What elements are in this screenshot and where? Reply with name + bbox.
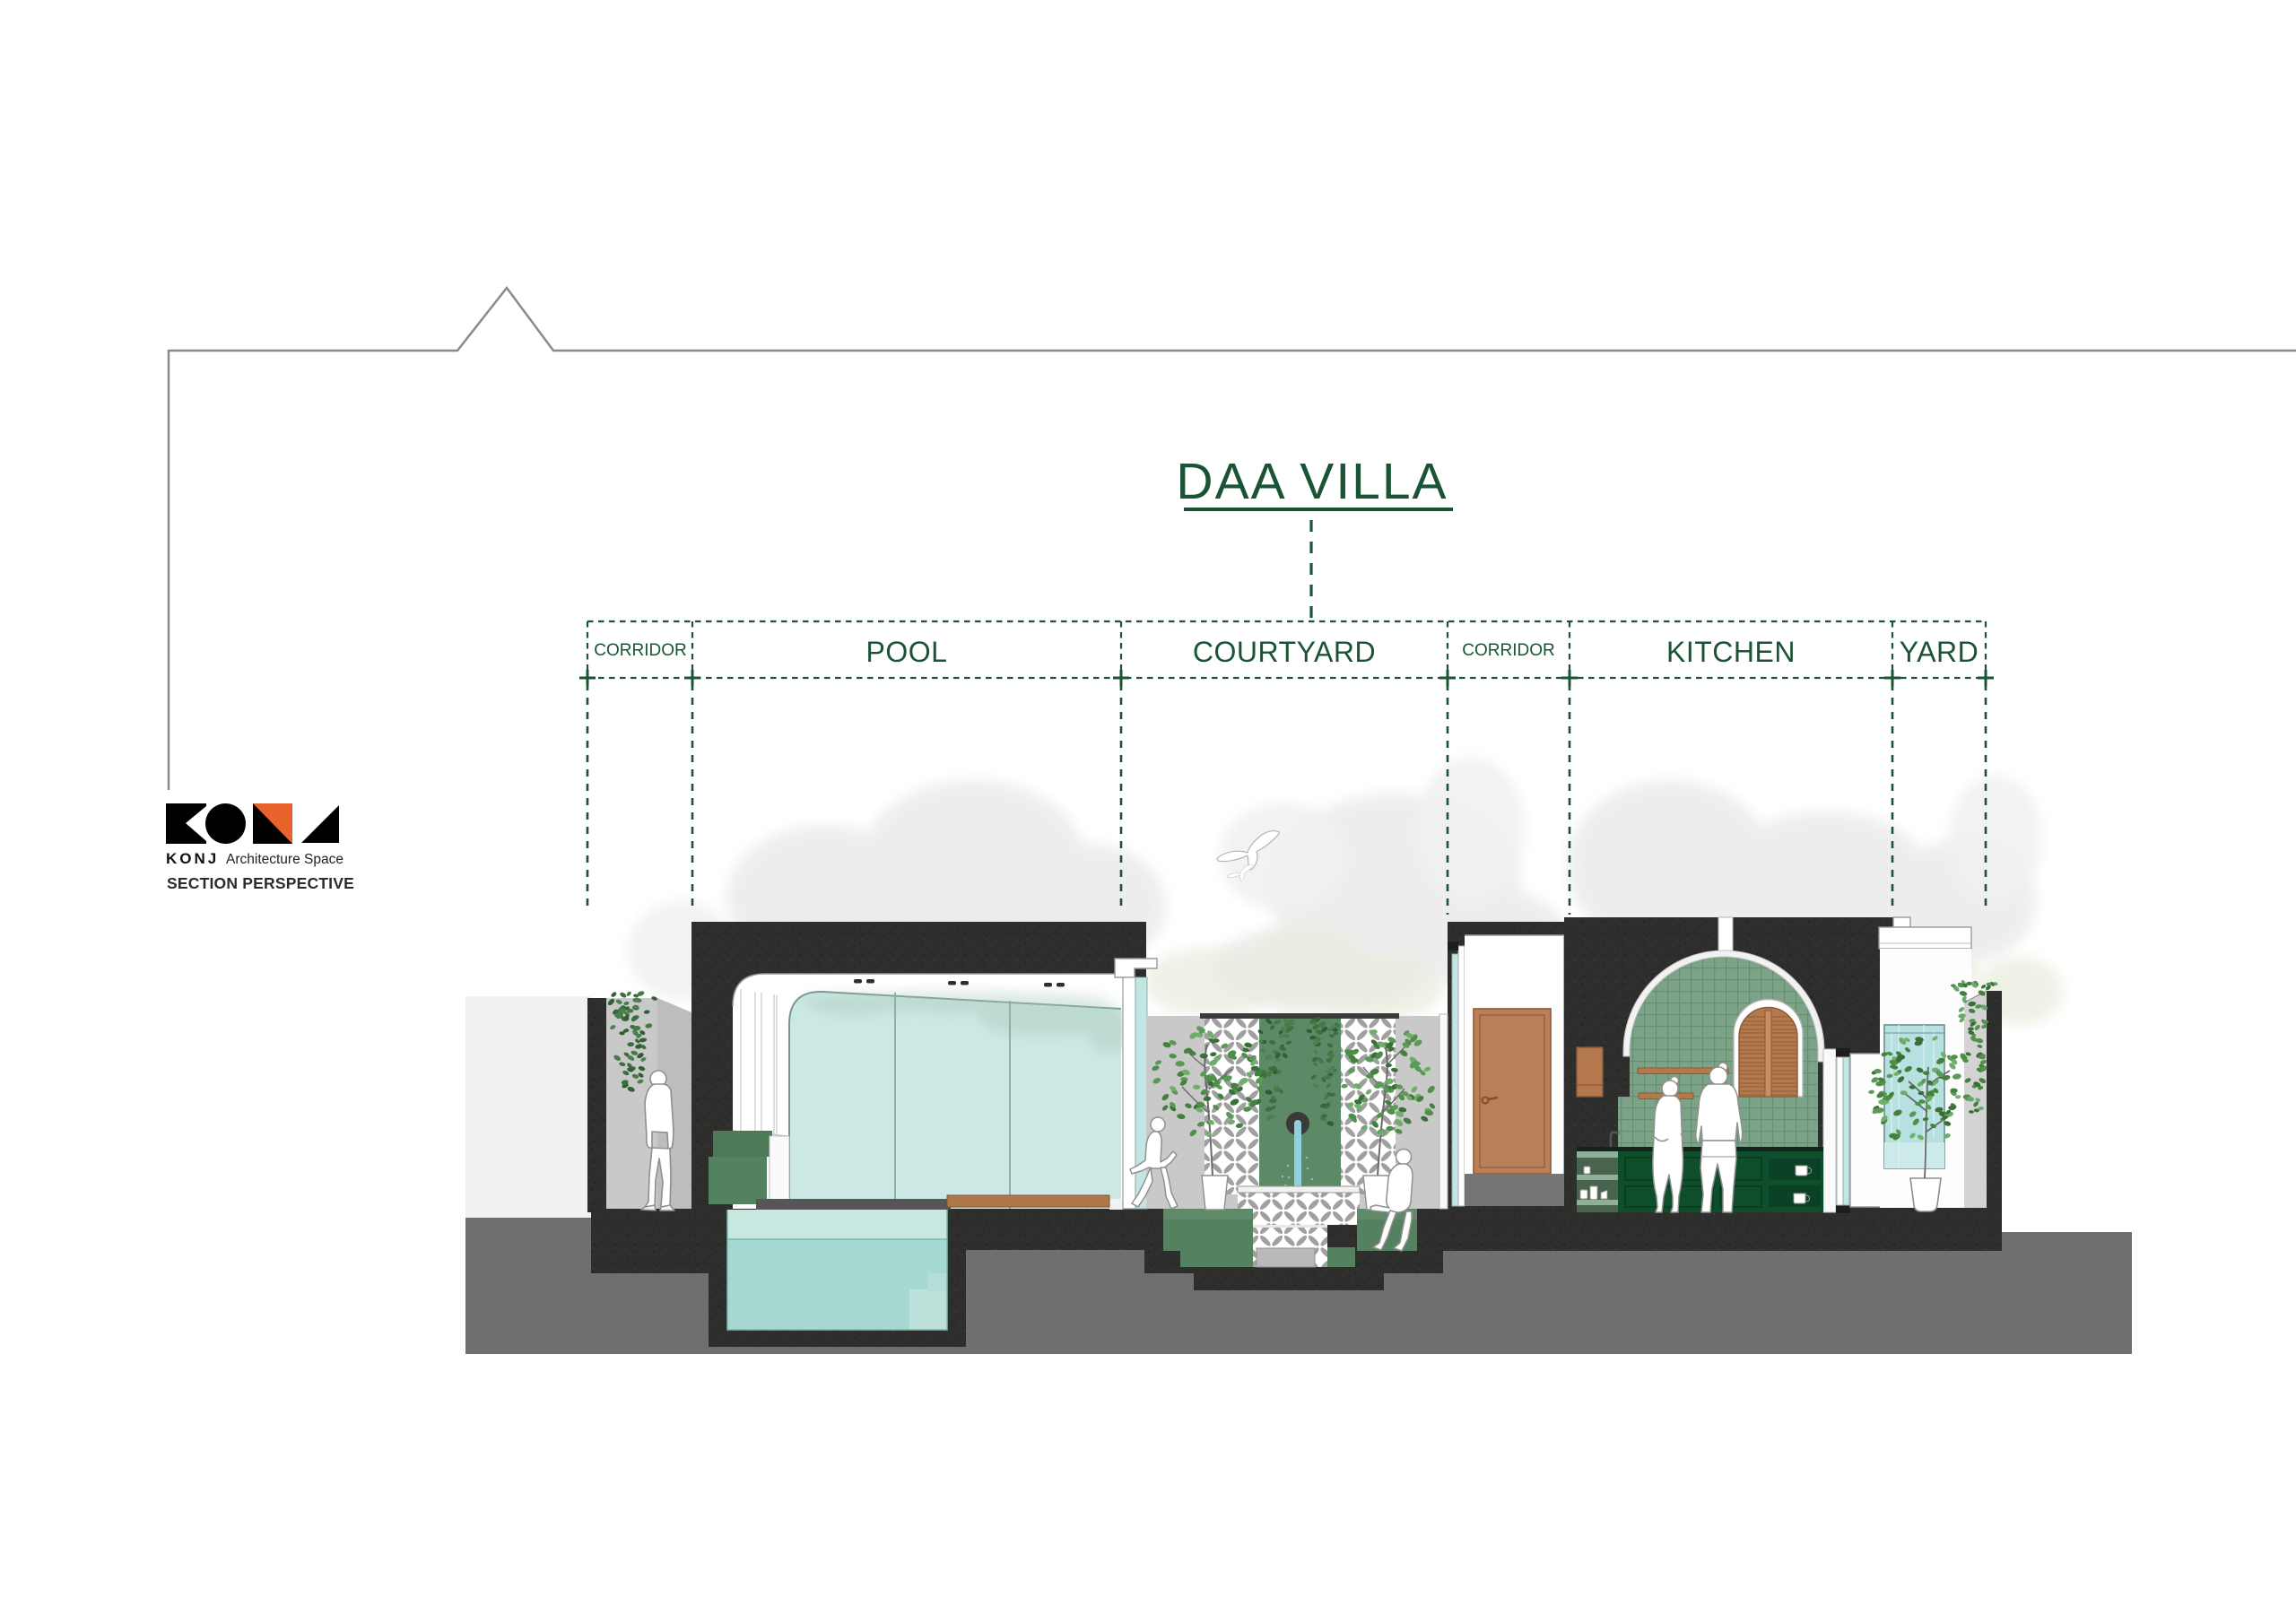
svg-text:YARD: YARD <box>1900 636 1979 668</box>
svg-text:CORRIDOR: CORRIDOR <box>1462 641 1554 660</box>
svg-text:DAA VILLA: DAA VILLA <box>1176 453 1448 510</box>
svg-text:POOL: POOL <box>866 636 948 668</box>
svg-text:KITCHEN: KITCHEN <box>1666 636 1796 668</box>
svg-text:COURTYARD: COURTYARD <box>1193 636 1376 668</box>
svg-text:KONJ: KONJ <box>166 850 219 867</box>
svg-text:CORRIDOR: CORRIDOR <box>594 641 686 660</box>
svg-text:SECTION PERSPECTIVE: SECTION PERSPECTIVE <box>167 874 354 892</box>
svg-text:Architecture Space: Architecture Space <box>226 852 344 867</box>
